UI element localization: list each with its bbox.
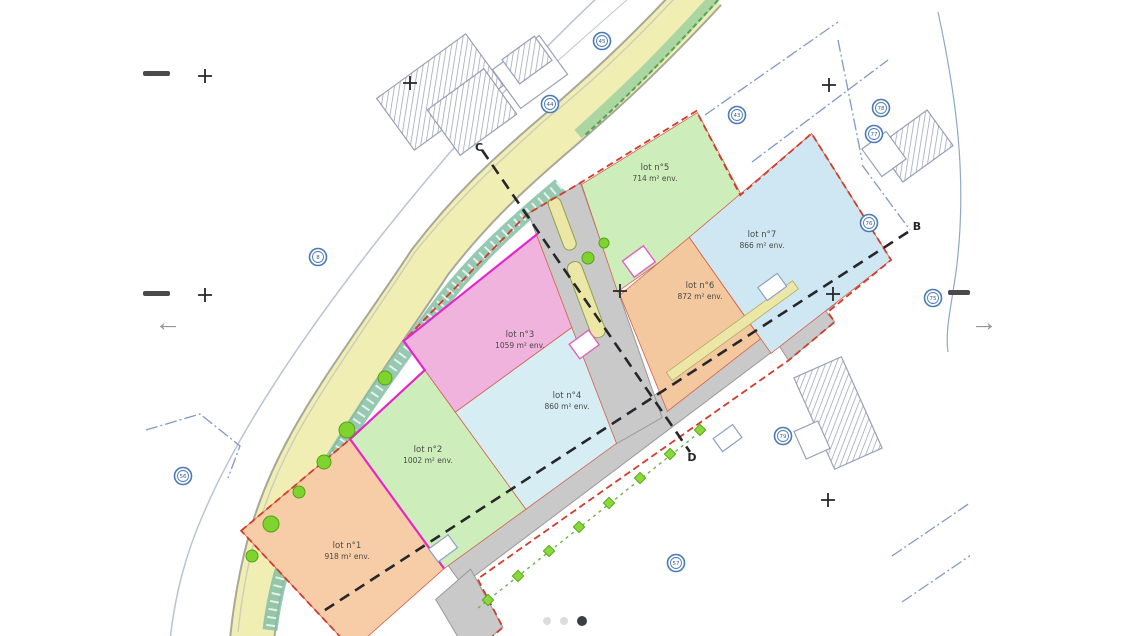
parcel-marker: 43 [729,107,746,124]
lot-area-label: 872 m² env. [677,292,722,301]
lot-area-label: 714 m² env. [632,174,677,183]
section-letter-d: D [687,451,696,464]
carousel-dot[interactable] [560,617,568,625]
parcel-marker: 78 [873,100,890,117]
svg-text:44: 44 [547,102,554,108]
carousel-prev-button[interactable]: ← [146,300,190,344]
svg-text:79: 79 [780,434,787,440]
parcel-marker: 75 [925,290,942,307]
section-letter-c: C [475,141,483,154]
lot-area-label: 1002 m² env. [403,456,453,465]
lot-label: lot n°4 [553,391,582,401]
lot-label: lot n°3 [506,330,535,340]
parcel-marker: 45 [594,33,611,50]
arrow-left-icon: ← [155,307,182,337]
svg-text:77: 77 [871,132,878,138]
carousel-next-button[interactable]: → [962,300,1006,344]
parcel-marker: 57 [668,555,685,572]
lot-area-label: 866 m² env. [739,241,784,250]
lot-area-label: 1059 m² env. [495,341,545,350]
carousel-dot[interactable] [543,617,551,625]
svg-text:43: 43 [734,113,741,119]
lot-label: lot n°2 [414,445,443,455]
svg-text:56: 56 [180,474,187,480]
lot-area-label: 918 m² env. [324,552,369,561]
parcel-marker: 56 [175,468,192,485]
section-letter-b: B [913,220,921,233]
parcel-marker: 8 [310,249,327,266]
lot-area-label: 860 m² env. [544,402,589,411]
svg-text:8: 8 [316,255,320,261]
lot-label: lot n°1 [333,541,362,551]
svg-text:75: 75 [930,296,937,302]
parcel-marker: 44 [542,96,559,113]
image-carousel: 454443787776758565779 C B D lot n°1 918 … [0,0,1130,636]
lot-label: lot n°5 [641,163,670,173]
lot-label: lot n°7 [748,230,777,240]
carousel-dots [0,617,1130,626]
svg-text:57: 57 [673,561,680,567]
svg-text:78: 78 [878,106,885,112]
parcel-marker: 79 [775,428,792,445]
svg-text:76: 76 [866,221,873,227]
svg-text:45: 45 [599,39,606,45]
carousel-dot[interactable] [577,616,587,626]
parcel-marker: 77 [866,126,883,143]
lot-label: lot n°6 [686,281,715,291]
parcel-marker: 76 [861,215,878,232]
arrow-right-icon: → [971,307,998,337]
